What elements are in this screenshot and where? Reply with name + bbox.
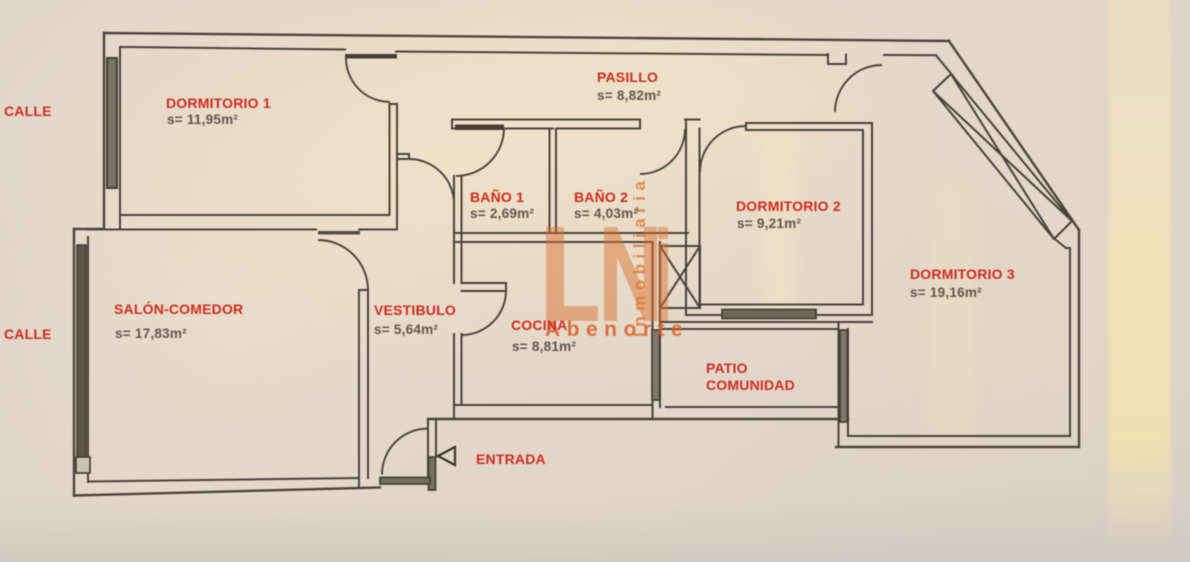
svg-text:s= 8,81m²: s= 8,81m² (512, 339, 576, 354)
svg-text:DORMITORIO 1: DORMITORIO 1 (166, 95, 271, 111)
svg-text:VESTIBULO: VESTIBULO (374, 302, 456, 318)
svg-text:s= 8,82m²: s= 8,82m² (597, 88, 661, 103)
svg-text:SALÓN-COMEDOR: SALÓN-COMEDOR (114, 300, 243, 317)
svg-text:BAÑO 1: BAÑO 1 (470, 188, 524, 205)
svg-text:Inmobiliaria: Inmobiliaria (630, 176, 649, 337)
svg-text:COMUNIDAD: COMUNIDAD (706, 377, 795, 393)
svg-text:s= 17,83m²: s= 17,83m² (115, 326, 187, 341)
svg-text:COCINA: COCINA (511, 317, 567, 333)
svg-text:PATIO: PATIO (706, 360, 748, 376)
svg-text:CALLE: CALLE (4, 326, 52, 342)
svg-text:DORMITORIO 2: DORMITORIO 2 (736, 198, 841, 214)
svg-text:PASILLO: PASILLO (597, 69, 658, 85)
svg-text:s= 4,03m²: s= 4,03m² (574, 206, 638, 221)
svg-text:ENTRADA: ENTRADA (476, 451, 546, 467)
svg-text:s= 2,69m²: s= 2,69m² (470, 206, 534, 221)
svg-text:s= 5,64m²: s= 5,64m² (374, 322, 438, 337)
svg-text:s= 11,95m²: s= 11,95m² (167, 112, 238, 127)
svg-text:BAÑO 2: BAÑO 2 (574, 188, 628, 205)
svg-text:DORMITORIO 3: DORMITORIO 3 (910, 266, 1015, 282)
svg-text:s= 19,16m²: s= 19,16m² (910, 285, 982, 300)
svg-text:CALLE: CALLE (4, 103, 52, 119)
svg-text:s= 9,21m²: s= 9,21m² (737, 216, 801, 231)
